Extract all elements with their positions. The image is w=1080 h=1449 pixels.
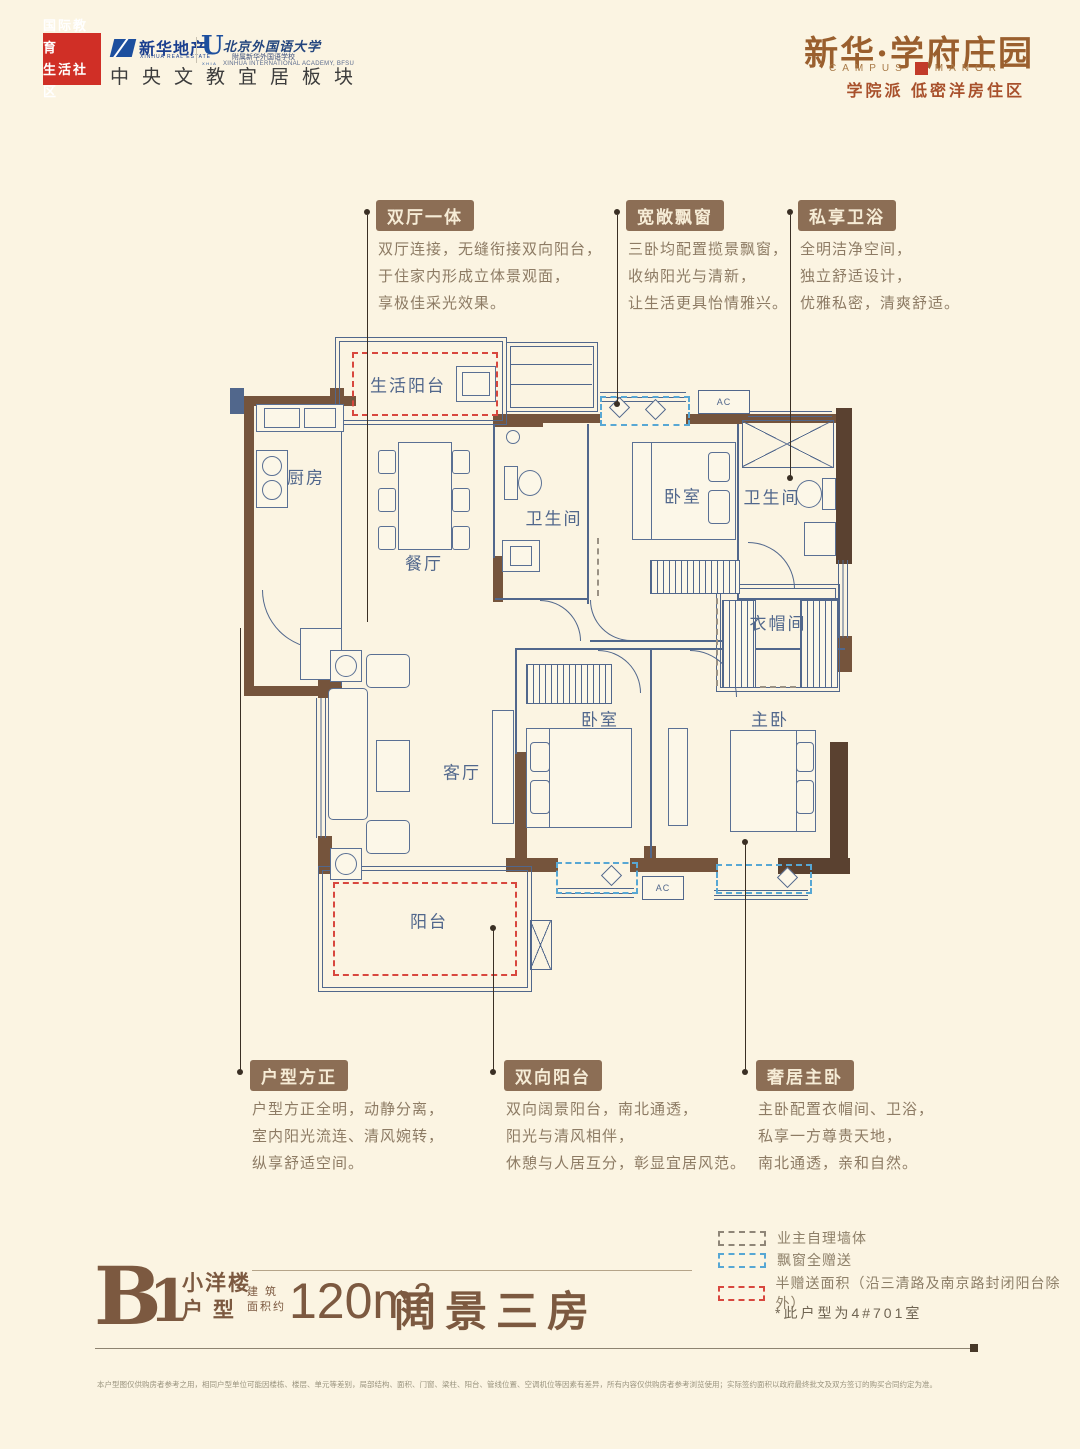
wall (686, 414, 742, 424)
flue-outline (230, 388, 244, 414)
callout-line (240, 628, 241, 1072)
room-label-dining: 餐厅 (405, 550, 443, 575)
legend-row-owner-wall: 业主自理墙体 (718, 1228, 867, 1248)
dining-chair (378, 526, 396, 550)
partition (493, 424, 495, 558)
pillow-icon (708, 490, 730, 524)
dining-chair (378, 488, 396, 512)
armchair-icon (366, 654, 410, 688)
callout-line (617, 215, 618, 404)
ac-label: AC (717, 397, 732, 407)
dining-chair (452, 526, 470, 550)
wall (540, 414, 600, 423)
bay-window-zone-bottom-left (556, 862, 638, 894)
pillow-icon (708, 452, 730, 482)
owner-wall-swatch-icon (718, 1231, 766, 1246)
coffee-table-icon (376, 740, 410, 792)
shower-icon (742, 420, 834, 468)
bath1-door-arc (540, 600, 581, 641)
callout-text-bay-window: 三卧均配置揽景飘窗， 收纳阳光与清新， 让生活更具怡情雅兴。 (628, 236, 788, 317)
room-label-living: 客厅 (443, 759, 481, 784)
callout-badge-dual-hall: 双厅一体 (376, 200, 474, 231)
callout-badge-private-bath: 私享卫浴 (798, 200, 896, 231)
callout-dot (490, 1069, 496, 1075)
callout-text-dual-hall: 双厅连接，无缝衔接双向阳台， 于住家内形成立体景观面， 享极佳采光效果。 (378, 236, 602, 317)
wall (836, 408, 852, 564)
bath1-toilet-tank (504, 466, 518, 500)
sofa-icon (328, 688, 368, 820)
bay-window-zone-master (716, 864, 812, 894)
callout-badge-master-suite: 奢居主卧 (756, 1060, 854, 1091)
room-label-balcony: 阳台 (410, 908, 448, 933)
unit-note: *此户型为4#701室 (775, 1303, 922, 1323)
legend-row-bay-window: 飘窗全赠送 (718, 1250, 852, 1270)
bottom-rule (95, 1348, 972, 1349)
callout-text-dual-balcony: 双向阔景阳台，南北通透， 阳光与清风相伴， 休憩与人居互分，彰显宜居风范。 (506, 1096, 746, 1177)
bath1-basin-inner (510, 546, 532, 566)
unit-name: 阔景三房 (394, 1278, 598, 1339)
ac-unit: AC (642, 876, 684, 900)
legend-label: 飘窗全赠送 (777, 1250, 852, 1270)
dresser-icon (650, 560, 740, 594)
stove-burner-icon (262, 480, 282, 500)
callout-line (367, 215, 368, 622)
callout-badge-square-layout: 户型方正 (250, 1060, 348, 1091)
bath1-toilet-bowl (518, 470, 542, 496)
room-label-master: 主卧 (751, 706, 789, 731)
pillow-icon (796, 780, 814, 814)
pillow-icon (530, 742, 550, 772)
room-label-bath1: 卫生间 (526, 505, 583, 530)
ac-unit: AC (698, 390, 750, 414)
callout-line (745, 844, 746, 1072)
bath2-basin (804, 522, 836, 556)
room-label-kitchen: 厨房 (287, 464, 325, 489)
stair-line (510, 364, 592, 365)
callout-line (493, 930, 494, 1072)
pillow-icon (530, 780, 550, 814)
wardrobe-icon (526, 664, 612, 704)
callout-dot (742, 1069, 748, 1075)
room-label-bedroom2: 卧室 (581, 706, 619, 731)
callout-badge-bay-window: 宽敞飘窗 (626, 200, 724, 231)
unit-type: 小洋楼 户 型 (182, 1270, 251, 1324)
kitchen-sink (264, 408, 300, 428)
window (838, 560, 848, 638)
callout-dot (237, 1069, 243, 1075)
dining-chair (378, 450, 396, 474)
wall (830, 742, 848, 870)
window (316, 698, 326, 838)
dining-chair (452, 488, 470, 512)
stairwell-outline (506, 342, 598, 412)
room-label-bedroom1: 卧室 (664, 483, 702, 508)
stove-burner-icon (262, 456, 282, 476)
top-rule (252, 1270, 692, 1271)
owner-wall-dashed (597, 538, 601, 596)
floor-plan: AC AC 生活阳台 厨房 餐厅 卫生间 卧室 卫生间 衣帽间 客厅 卧室 主卧… (0, 0, 1080, 1449)
partition (587, 424, 589, 604)
callout-dot (614, 401, 620, 407)
disclaimer-text: 本户型图仅供购房者参考之用，相同户型单位可能因楼栋、楼层、单元等差别，局部结构、… (97, 1379, 987, 1390)
wall (630, 858, 718, 872)
wall (244, 396, 254, 696)
poster-page: 国际教育 生活社区 新华地产 XINHUA REAL ESTATE U XHIA… (0, 0, 1080, 1449)
kitchen-cabinet (304, 408, 336, 428)
half-gift-swatch-icon (718, 1286, 765, 1301)
bed-headline (651, 443, 652, 539)
partition (650, 650, 652, 858)
side-table-icon (330, 848, 362, 880)
callout-text-square-layout: 户型方正全明，动静分离， 室内阳光流连、清风婉转， 纵享舒适空间。 (252, 1096, 444, 1177)
callout-line (790, 215, 791, 478)
callout-dot (787, 475, 793, 481)
partition (515, 650, 517, 754)
side-table-icon (330, 650, 362, 682)
bath2-door-arc (748, 542, 795, 589)
legend-label: 业主自理墙体 (777, 1228, 867, 1248)
tv-stand-icon (492, 710, 514, 824)
room-label-living-balcony: 生活阳台 (370, 372, 446, 397)
bay-window-swatch-icon (718, 1253, 766, 1268)
pillow-icon (796, 742, 814, 772)
area-label: 建 筑 面积约 (247, 1285, 286, 1315)
ac-unit (530, 920, 552, 970)
callout-badge-dual-balcony: 双向阳台 (504, 1060, 602, 1091)
room-label-bath2: 卫生间 (744, 484, 801, 509)
room-label-cloakroom: 衣帽间 (750, 610, 807, 635)
ac-label: AC (656, 883, 671, 893)
armchair-icon (366, 820, 410, 854)
rule-end-square (970, 1344, 978, 1352)
callout-text-master-suite: 主卧配置衣帽间、卫浴， 私享一方尊贵天地， 南北通透，亲和自然。 (758, 1096, 934, 1177)
bath2-toilet-tank (822, 478, 836, 510)
dining-table (398, 442, 452, 550)
stair-line (510, 384, 592, 385)
callout-text-private-bath: 全明洁净空间， 独立舒适设计， 优雅私密，清爽舒适。 (800, 236, 960, 317)
bedroom1-door-arc (590, 600, 631, 641)
dining-chair (452, 450, 470, 474)
bath1-faucet-icon (506, 430, 520, 444)
shelf-icon (668, 728, 688, 826)
